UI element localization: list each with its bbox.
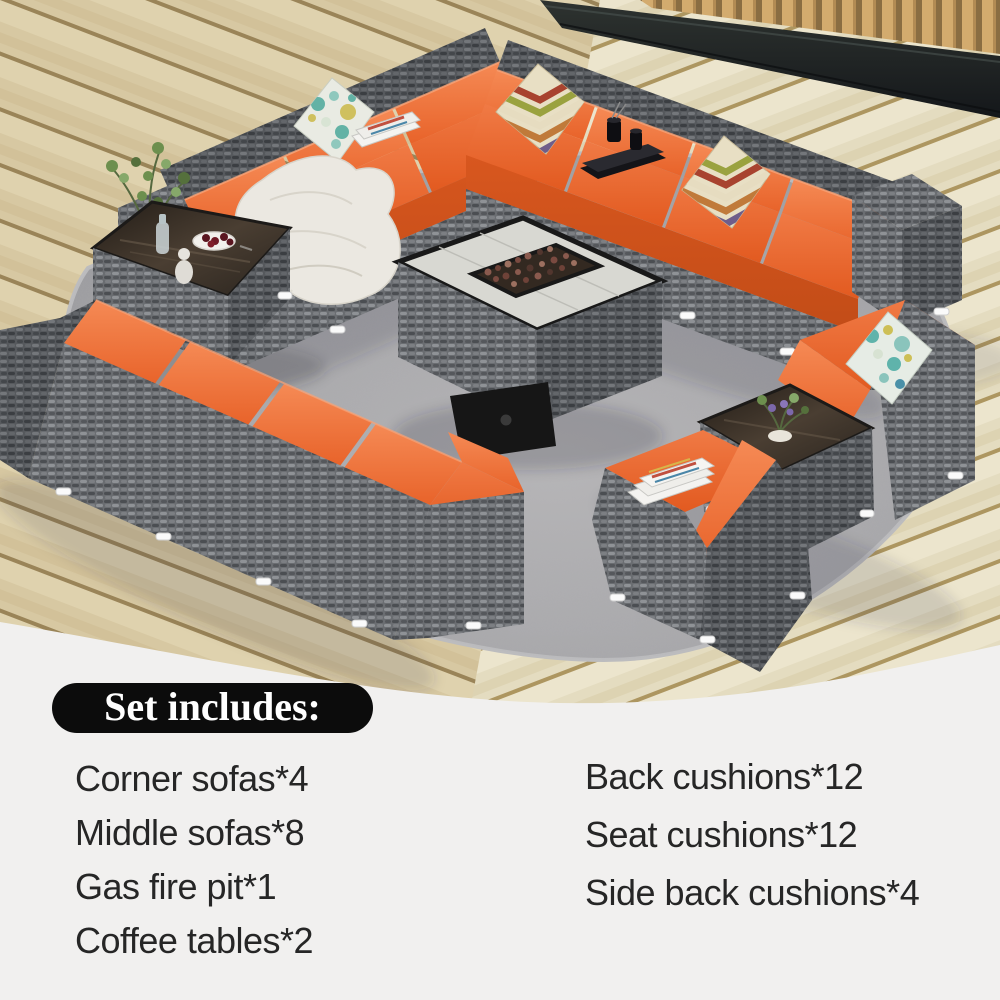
set-includes-title-badge: Set includes: (52, 683, 373, 733)
list-item-gas-fire-pit: Gas fire pit*1 (75, 860, 313, 914)
set-includes-list-right: Back cushions*12 Seat cushions*12 Side b… (585, 748, 919, 922)
product-image: Set includes: Corner sofas*4 Middle sofa… (0, 0, 1000, 1000)
list-item-seat-cushions: Seat cushions*12 (585, 806, 919, 864)
set-includes-title: Set includes: (104, 687, 321, 730)
list-item-side-back-cushions: Side back cushions*4 (585, 864, 919, 922)
list-item-middle-sofas: Middle sofas*8 (75, 806, 313, 860)
list-item-coffee-tables: Coffee tables*2 (75, 914, 313, 968)
set-includes-list-left: Corner sofas*4 Middle sofas*8 Gas fire p… (75, 752, 313, 968)
list-item-back-cushions: Back cushions*12 (585, 748, 919, 806)
list-item-corner-sofas: Corner sofas*4 (75, 752, 313, 806)
